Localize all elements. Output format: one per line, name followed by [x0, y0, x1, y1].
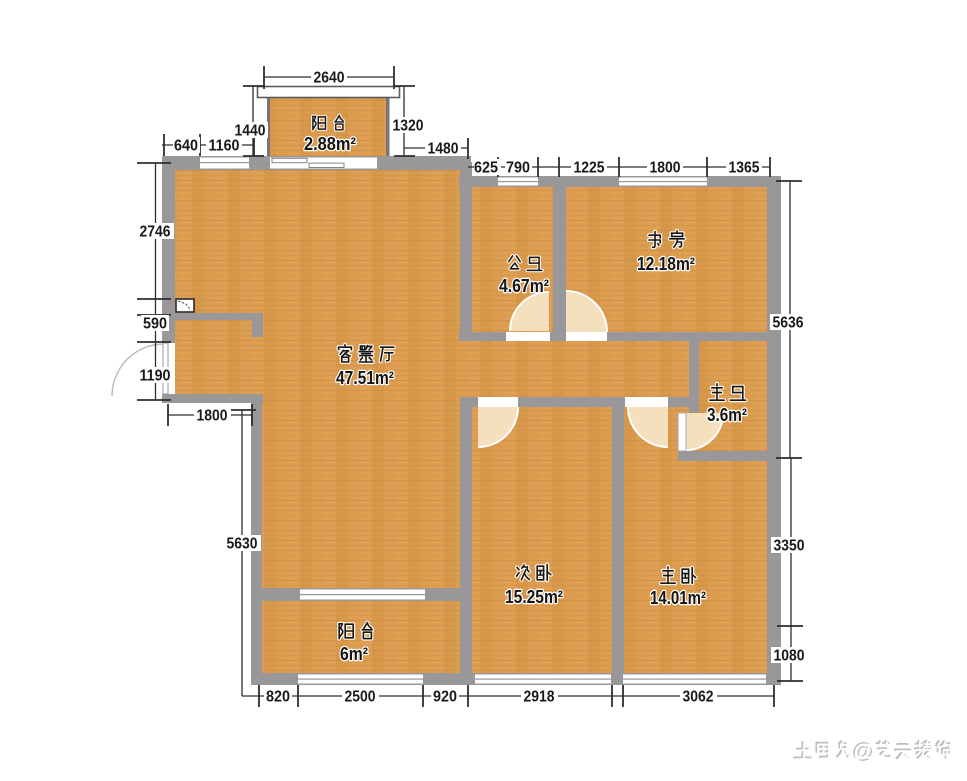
svg-text:920: 920	[433, 689, 457, 706]
svg-text:3350: 3350	[774, 538, 805, 555]
svg-text:1320: 1320	[393, 118, 424, 135]
svg-text:625: 625	[474, 160, 498, 177]
svg-text:1800: 1800	[197, 408, 228, 425]
svg-text:1800: 1800	[650, 160, 681, 177]
svg-text:14.01m²: 14.01m²	[650, 588, 706, 608]
svg-text:1080: 1080	[774, 648, 805, 665]
svg-text:4.67m²: 4.67m²	[499, 276, 549, 296]
svg-text:12.18m²: 12.18m²	[637, 254, 695, 274]
svg-text:@: @	[854, 740, 875, 765]
svg-text:590: 590	[143, 316, 167, 333]
svg-text:2500: 2500	[345, 689, 376, 706]
svg-text:640: 640	[174, 138, 198, 155]
svg-text:1480: 1480	[428, 141, 459, 158]
svg-text:15.25m²: 15.25m²	[505, 587, 563, 607]
svg-text:3.6m²: 3.6m²	[707, 405, 747, 425]
svg-text:1225: 1225	[574, 160, 605, 177]
svg-text:2918: 2918	[524, 689, 555, 706]
svg-text:1160: 1160	[209, 138, 240, 155]
svg-text:47.51m²: 47.51m²	[336, 368, 394, 388]
svg-text:3062: 3062	[683, 689, 714, 706]
svg-text:5630: 5630	[227, 536, 258, 553]
svg-text:1365: 1365	[729, 160, 760, 177]
svg-text:2746: 2746	[140, 224, 171, 241]
svg-text:5636: 5636	[773, 315, 804, 332]
svg-text:790: 790	[506, 160, 530, 177]
svg-text:2.88m²: 2.88m²	[304, 134, 356, 154]
svg-text:2640: 2640	[314, 70, 345, 87]
svg-text:6m²: 6m²	[340, 644, 368, 664]
svg-text:1190: 1190	[140, 368, 171, 385]
svg-text:820: 820	[266, 689, 290, 706]
